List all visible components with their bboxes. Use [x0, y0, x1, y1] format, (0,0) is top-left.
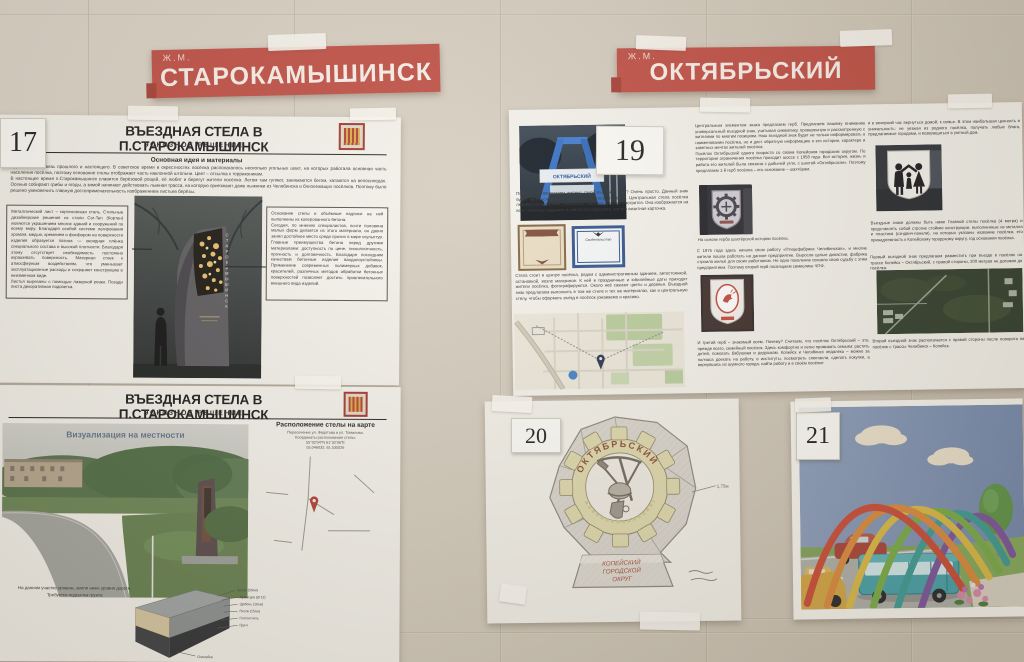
material-note-concrete: Основание стелы и объёмные надписи на не…	[266, 206, 389, 301]
banner-starokamyshinsk: Ж.М. СТАРОКАМЫШИНСК	[151, 44, 440, 99]
svg-text:Бетон (50см): Бетон (50см)	[238, 588, 258, 592]
material-note-steel: Металлический лист – кортеновская сталь.…	[6, 205, 129, 300]
emblem-stripes	[344, 128, 360, 145]
svg-text:Грунт: Грунт	[239, 623, 248, 627]
map-title: Расположение стелы на карте	[261, 421, 391, 429]
poster-19: ОКТЯБРЬСКИЙ Почему мы предлагаем именно …	[509, 102, 1024, 396]
family-emblem-photo	[875, 144, 942, 211]
banner-title: ОКТЯБРЬСКИЙ	[617, 57, 875, 88]
certificate-ribbon	[525, 229, 559, 237]
banner-prefix: Ж.М.	[163, 52, 192, 63]
tape	[128, 106, 178, 121]
svg-text:Щебень (10см): Щебень (10см)	[240, 602, 263, 606]
apartment-buildings	[4, 459, 82, 487]
col3-paragraph: и в вечерний час вернуться домой, к семь…	[868, 118, 1020, 137]
site-visualization-render: Визуализация на местности	[2, 423, 249, 598]
poster-subtitle: ЭСКИЗНОЕ РЕШЕНИЕ	[49, 409, 339, 418]
certificate-blue: Свидетельство	[572, 225, 626, 268]
entry-number-21: 21	[796, 412, 840, 460]
tape	[840, 29, 893, 47]
col2-caption: На основе герба шахтёрской истории посёл…	[698, 235, 858, 243]
entry-number-17: 17	[0, 118, 46, 168]
map-streets	[266, 456, 374, 551]
certificate-title: Свидетельство	[575, 237, 622, 242]
tape	[640, 611, 700, 630]
entry-number-20: 20	[511, 418, 561, 453]
tape	[636, 35, 686, 51]
col2-paragraph: Центральным элементом знака предлагаем г…	[695, 120, 866, 173]
svg-text:Опалубка: Опалубка	[197, 655, 213, 659]
foundation-layers-diagram: Бетон (50см) Арматура (Ø 12) Щебень (10с…	[117, 582, 267, 662]
banner-oktyabrsky: Ж.М. ОКТЯБРЬСКИЙ	[617, 46, 875, 93]
tape	[948, 94, 992, 109]
intro-paragraph: Идея стелы – связь прошлого и настоящего…	[10, 164, 386, 197]
kopeysk-emblem-icon	[339, 123, 365, 150]
svg-text:Арматура (Ø 12): Арматура (Ø 12)	[240, 595, 266, 599]
callout-line	[132, 249, 152, 250]
height-annotation: 1,75м	[717, 484, 729, 489]
svg-text:Геотекстиль: Геотекстиль	[239, 616, 258, 620]
col3-paragraph: Второй въездной знак располагается с пра…	[872, 336, 1024, 350]
banner-title: СТАРОКАМЫШИНСК	[152, 58, 441, 94]
entry-number-19: 19	[596, 126, 664, 176]
tape	[350, 108, 396, 121]
signature-handwriting	[689, 570, 717, 581]
poster-title: ВЪЕЗДНАЯ СТЕЛА В П.СТАРОКАМЫШИНСК	[49, 123, 339, 155]
col3-paragraph: Въездные знаки должны быть ниже Главной …	[871, 218, 1023, 243]
exhibition-wall-photo: Ж.М. СТАРОКАМЫШИНСК Ж.М. ОКТЯБРЬСКИЙ ВЪЕ…	[0, 0, 1024, 662]
col2-paragraph: С 1975 года здесь начала свою работу «Пт…	[697, 245, 867, 270]
col1-paragraph: Стела стоит в центре посёлка, рядом с ад…	[515, 270, 687, 301]
col2-paragraph: И третий герб – знакомый всем. Почему? С…	[697, 337, 869, 368]
location-map-sketch	[258, 452, 393, 557]
tape	[700, 98, 750, 113]
settlement-street-map	[514, 311, 685, 390]
aerial-satellite-photo	[876, 268, 1023, 334]
poster-17-bottom: ВЪЕЗДНАЯ СТЕЛА В П.СТАРОКАМЫШИНСК ЭСКИЗН…	[0, 385, 401, 662]
tile-grout	[0, 14, 1024, 16]
tape	[795, 397, 831, 412]
tape	[492, 395, 533, 413]
poultry-farm-emblem-photo	[700, 274, 754, 332]
svg-text:Песок (15см): Песок (15см)	[240, 609, 260, 613]
kopeysk-emblem-icon	[344, 392, 368, 417]
svg-text:ОКРУГ: ОКРУГ	[612, 575, 633, 583]
stela-name-vertical: СТАРОКАМЫШИНСК	[224, 232, 230, 309]
emblem-stripes	[349, 397, 363, 412]
stela-night-render: СТАРОКАМЫШИНСК	[133, 196, 262, 379]
tape	[499, 583, 527, 604]
col1-paragraph: Почему мы предлагаем именно такой въездн…	[516, 188, 688, 214]
gear-coat-of-arms-photo	[699, 184, 753, 235]
viz-caption: Визуализация на местности	[66, 429, 184, 440]
tape	[295, 376, 341, 390]
certificate-beige	[518, 224, 567, 271]
tape	[268, 33, 327, 51]
poster-17-top: ВЪЕЗДНАЯ СТЕЛА В П.СТАРОКАМЫШИНСК ЭСКИЗН…	[0, 115, 401, 386]
map-note-line: 55.046032, 61.535026	[260, 445, 390, 450]
